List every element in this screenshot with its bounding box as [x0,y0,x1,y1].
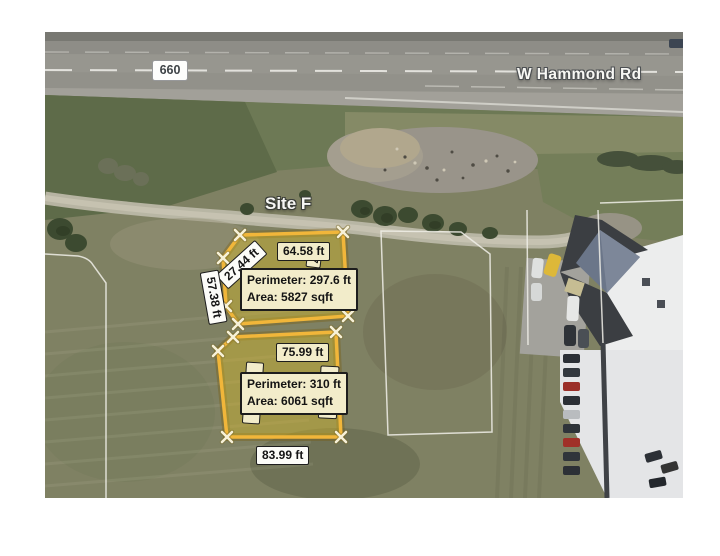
upper-area-text: Area: 5827 sqft [247,289,351,306]
roof-unit [642,278,650,286]
upper-perimeter-text: Perimeter: 297.6 ft [247,272,351,289]
screenshot-page: 660 W Hammond Rd Site F 7 64.58 ft 27.44… [0,0,720,556]
aerial-map[interactable]: 660 W Hammond Rd Site F 7 64.58 ft 27.44… [45,32,683,498]
lower-measurement-summary[interactable]: Perimeter: 310 ft Area: 6061 sqft [240,372,348,415]
route-marker: 660 [152,60,188,81]
upper-top-edge-label[interactable]: 64.58 ft [277,242,330,261]
lower-area-text: Area: 6061 sqft [247,393,341,410]
roof-unit [657,300,665,308]
site-label: Site F [265,194,311,214]
lower-top-edge-label[interactable]: 75.99 ft [276,343,329,362]
road-name-label: W Hammond Rd [517,66,642,84]
upper-measurement-summary[interactable]: Perimeter: 297.6 ft Area: 5827 sqft [240,268,358,311]
lower-bottom-edge-label[interactable]: 83.99 ft [256,446,309,465]
satellite-imagery [45,32,683,498]
vehicle-on-road [669,39,683,48]
lower-perimeter-text: Perimeter: 310 ft [247,376,341,393]
